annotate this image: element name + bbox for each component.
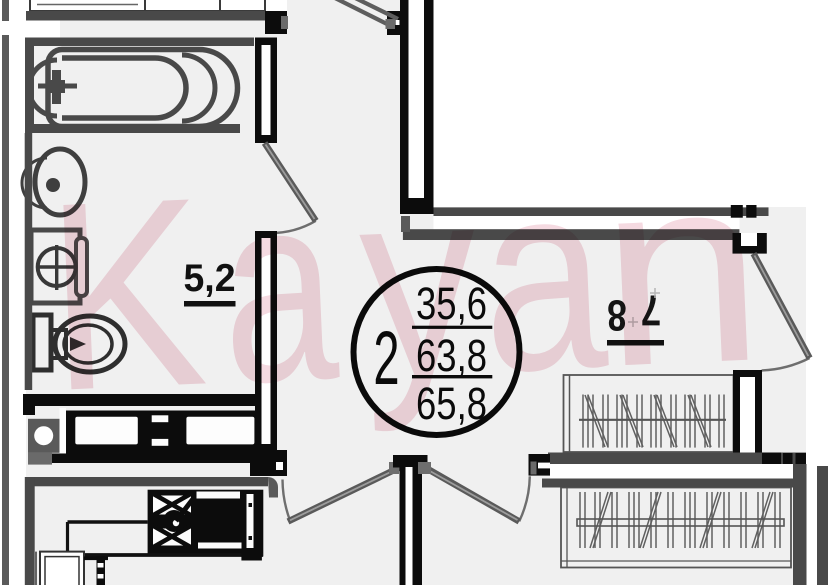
- svg-text:y: y: [354, 130, 483, 435]
- svg-text:a: a: [216, 135, 343, 440]
- svg-text:a: a: [476, 123, 612, 427]
- svg-text:n: n: [595, 118, 769, 424]
- svg-text:K: K: [42, 142, 211, 447]
